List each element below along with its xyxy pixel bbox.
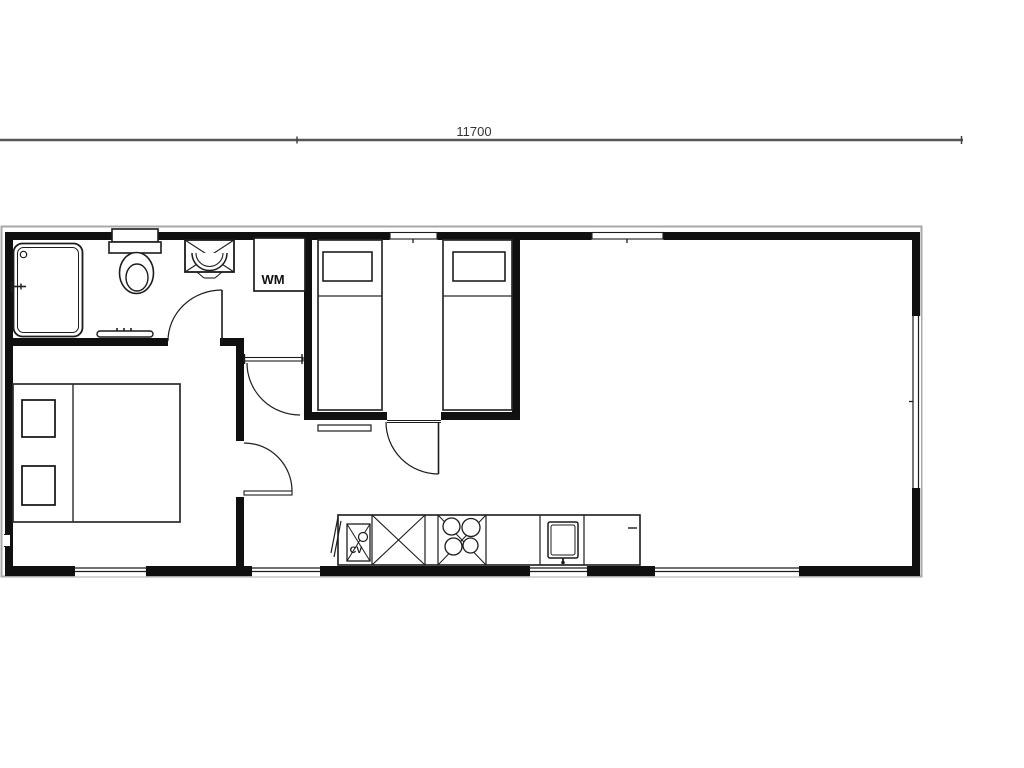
shower-drain: [20, 251, 26, 257]
floor-plan-drawing: 11700: [0, 0, 1024, 768]
washing-machine-label: WM: [261, 272, 284, 287]
pillow: [453, 252, 505, 281]
window-top-bedroom2: [390, 231, 438, 243]
wall-bathroom-south-b: [220, 338, 244, 346]
shower-tray: [14, 244, 83, 337]
pillow: [323, 252, 372, 281]
bathroom: [11, 229, 235, 341]
bedroom2-door: [386, 421, 441, 475]
pillow: [22, 466, 55, 505]
bathroom-door: [168, 290, 222, 341]
dimension-label: 11700: [456, 124, 491, 139]
wall-bedroom2-south-b: [441, 412, 520, 420]
wall-bedroom2-east: [512, 240, 520, 420]
double-bed: [13, 384, 180, 522]
master-bedroom: [13, 384, 292, 522]
wall-right-lower: [912, 488, 920, 576]
wall-master-east-a: [236, 346, 244, 441]
window-bottom-hall: [252, 566, 320, 577]
toilet: [109, 229, 161, 294]
utility-closet-door: [244, 354, 303, 415]
bedroom-2: [318, 240, 512, 474]
single-bed-left: [318, 240, 382, 410]
hob-4-burners: [438, 515, 486, 565]
boiler-label: CV: [350, 545, 363, 555]
wall-right-upper: [912, 232, 920, 316]
floor-plan-page: 11700: [0, 0, 1024, 768]
wall-bathroom-south-a: [5, 338, 168, 346]
window-bottom-kitchen: [530, 566, 587, 577]
base-cabinet-cross: [372, 515, 425, 565]
window-bottom-master: [75, 566, 146, 577]
pillow: [22, 400, 55, 437]
washbasin: [185, 240, 234, 278]
window-top-living: [592, 231, 664, 243]
boiler-unit: CV: [347, 524, 370, 561]
towel-rail: [97, 328, 153, 337]
window-bottom-living: [655, 566, 799, 577]
wall-master-east-b: [236, 497, 244, 566]
radiator: [318, 425, 371, 431]
window-right-living: [909, 316, 921, 488]
dimension-line: 11700: [0, 124, 963, 144]
kitchen-sink: [548, 522, 578, 564]
wall-bedroom2-south-a: [304, 412, 387, 420]
counter-end-panel: [331, 517, 341, 557]
master-bedroom-door: [244, 443, 292, 495]
kitchen-counter: [338, 515, 640, 565]
utility-closet: WM: [244, 238, 305, 415]
vent-left-wall: [4, 535, 10, 547]
single-bed-right: [443, 240, 512, 410]
kitchen: CV: [331, 515, 640, 565]
shower-mixer: [11, 281, 27, 292]
